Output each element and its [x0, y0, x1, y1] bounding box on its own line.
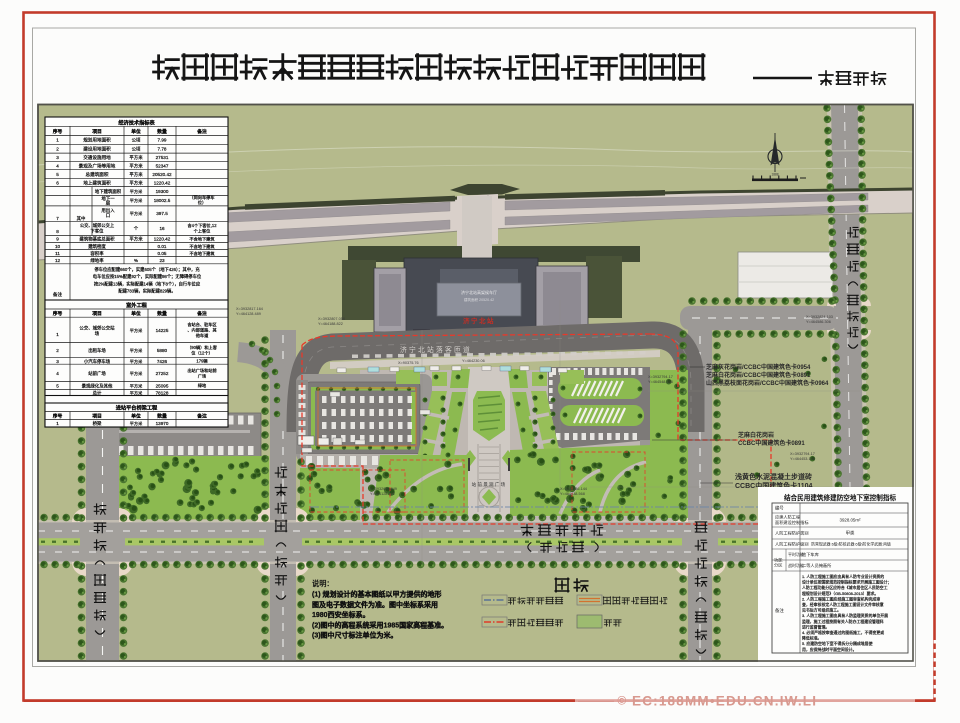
svg-text:X=3932630.849: X=3932630.849: [370, 487, 397, 491]
svg-text:口: 口: [106, 213, 110, 218]
svg-text:数量: 数量: [157, 412, 167, 419]
svg-text:X=3932817.164: X=3932817.164: [236, 307, 263, 311]
svg-text:站前景观广场: 站前景观广场: [472, 481, 507, 488]
svg-text:进站平台桥梁工程: 进站平台桥梁工程: [116, 404, 158, 412]
svg-text:4: 4: [56, 164, 59, 169]
svg-text:12: 12: [55, 258, 61, 263]
svg-text:电车位应按15%配建92个，实际配建98个；无障碍停车位: 电车位应按15%配建92个，实际配建98个；无障碍停车位: [93, 273, 202, 280]
svg-text:1: 1: [56, 421, 59, 426]
svg-text:1. 人防工程施工图应由具有人防专业设计资质的: 1. 人防工程施工图应由具有人防专业设计资质的: [802, 574, 884, 579]
svg-text:说明：: 说明：: [312, 579, 334, 588]
svg-text:小汽车停车场: 小汽车停车场: [84, 358, 111, 365]
svg-text:X=3932794.17: X=3932794.17: [790, 452, 815, 456]
svg-text:公顷: 公顷: [132, 146, 141, 153]
svg-text:广场: 广场: [198, 372, 206, 379]
svg-text:4: 4: [56, 371, 59, 376]
svg-text:数量: 数量: [157, 128, 167, 135]
svg-text:芝麻白花岗岩/CCBC中国建筑色卡0891: 芝麻白花岗岩/CCBC中国建筑色卡0891: [706, 371, 811, 379]
svg-text:分区: 分区: [774, 562, 782, 569]
svg-text:备注: 备注: [196, 310, 207, 317]
svg-text:用，应保持战时平面空间设计。: 用，应保持战时平面空间设计。: [802, 647, 856, 652]
svg-text:查，经审核核定人防工程施工图设计文件审核意: 查，经审核核定人防工程施工图设计文件审核意: [802, 602, 884, 607]
svg-text:5. 应建防空地下室不得拆分分隔成堆层使: 5. 应建防空地下室不得拆分分隔成堆层使: [802, 641, 873, 646]
svg-text:CCBC中国建筑色卡0891: CCBC中国建筑色卡0891: [738, 439, 805, 447]
svg-text:二等人员掩蔽所: 二等人员掩蔽所: [802, 562, 831, 569]
svg-text:平方米: 平方米: [129, 171, 143, 178]
svg-text:建筑密度: 建筑密度: [88, 243, 106, 250]
svg-text:(2)图中的高程系统采用1985国家高程基准。: (2)图中的高程系统采用1985国家高程基准。: [312, 620, 448, 629]
svg-text:项目: 项目: [92, 310, 102, 317]
svg-text:进行监督管理。: 进行监督管理。: [802, 624, 829, 629]
svg-text:单位: 单位: [131, 128, 141, 135]
svg-text:总建筑面积: 总建筑面积: [86, 171, 109, 178]
svg-text:Y=464128.721: Y=464128.721: [370, 492, 395, 496]
svg-text:地下建筑面积: 地下建筑面积: [95, 188, 122, 195]
svg-text:项目: 项目: [92, 128, 102, 135]
svg-text:浅黄色水泥混凝土步道砖: 浅黄色水泥混凝土步道砖: [735, 472, 812, 481]
svg-text:0.01: 0.01: [158, 244, 167, 249]
svg-text:平方米: 平方米: [130, 327, 143, 334]
svg-text:图及电子数据文件为准。图中坐标系采用: 图及电子数据文件为准。图中坐标系采用: [312, 600, 438, 609]
svg-text:规划用地面积: 规划用地面积: [83, 137, 111, 144]
svg-text:经济技术指标表: 经济技术指标表: [118, 119, 155, 127]
svg-text:Y=464548.366: Y=464548.366: [648, 380, 673, 384]
svg-text:编号: 编号: [775, 505, 784, 512]
svg-text:10: 10: [55, 244, 61, 249]
svg-text:地下车库: 地下车库: [802, 551, 819, 558]
svg-text:X=3932794.17: X=3932794.17: [648, 375, 673, 379]
svg-text:1888: 1888: [771, 173, 778, 177]
svg-text:平方米: 平方米: [130, 210, 143, 217]
svg-text:179辆: 179辆: [196, 358, 207, 365]
svg-text:不含地下建筑: 不含地下建筑: [189, 250, 215, 257]
svg-text:芝麻灰花岗岩/CCBC中国建筑色卡0954: 芝麻灰花岗岩/CCBC中国建筑色卡0954: [706, 363, 811, 371]
svg-text:(3)图中尺寸标注单位为米。: (3)图中尺寸标注单位为米。: [312, 631, 398, 640]
svg-text:场: 场: [95, 330, 100, 337]
svg-text:——— ©: ——— ©: [578, 694, 626, 708]
svg-text:人防工程防护级别: 人防工程防护级别: [775, 541, 809, 548]
svg-text:景观绿化及其他: 景观绿化及其他: [82, 382, 113, 389]
svg-text:位（12个）: 位（12个）: [191, 349, 212, 355]
svg-text:停车位应配建660个，实建605个（地下426）；其中，充: 停车位应配建660个，实建605个（地下426）；其中，充: [94, 266, 200, 273]
svg-text:平方米: 平方米: [130, 420, 143, 427]
svg-text:%: %: [134, 258, 138, 263]
svg-text:备注: 备注: [196, 412, 207, 419]
svg-text:平方米: 平方米: [129, 236, 143, 243]
svg-text:397.5: 397.5: [156, 211, 168, 216]
svg-text:见书后方可组织施工。: 见书后方可组织施工。: [802, 608, 841, 613]
svg-text:Y=464038.568: Y=464038.568: [560, 492, 585, 496]
svg-text:20520.42: 20520.42: [152, 172, 172, 177]
svg-text:平方米: 平方米: [129, 154, 143, 161]
svg-text:1: 1: [56, 332, 59, 337]
svg-text:Y=464188.822: Y=464188.822: [318, 322, 343, 326]
svg-text:个上客位: 个上客位: [194, 228, 211, 235]
svg-text:4. 必须严格按审查通过的图纸施工，不得变更或: 4. 必须严格按审查通过的图纸施工，不得变更或: [802, 630, 884, 635]
svg-text:山西黑荔枝面花岗岩/CCBC中国建筑色卡0964: 山西黑荔枝面花岗岩/CCBC中国建筑色卡0964: [706, 379, 829, 387]
svg-text:平方米: 平方米: [130, 188, 143, 195]
svg-text:绿地: 绿地: [198, 382, 207, 388]
svg-text:序号: 序号: [53, 128, 63, 135]
svg-text:总计: 总计: [93, 389, 102, 396]
svg-text:备注: 备注: [53, 291, 63, 298]
svg-text:下客位: 下客位: [91, 228, 105, 235]
svg-text:平方米: 平方米: [129, 179, 143, 186]
svg-text:25095: 25095: [156, 383, 169, 388]
svg-text:备注: 备注: [775, 607, 784, 614]
svg-text:不含地下建筑: 不含地下建筑: [189, 243, 215, 250]
svg-text:6: 6: [56, 180, 59, 185]
svg-text:平方米: 平方米: [130, 197, 143, 204]
svg-text:7.99: 7.99: [158, 138, 167, 143]
svg-text:序号: 序号: [53, 310, 63, 317]
svg-text:2: 2: [56, 147, 59, 152]
svg-text:备注: 备注: [196, 128, 207, 135]
svg-text:平方米: 平方米: [129, 163, 143, 170]
svg-text:X=3932807.058: X=3932807.058: [318, 317, 345, 321]
svg-text:平方米: 平方米: [130, 370, 143, 377]
svg-text:其中: 其中: [77, 215, 86, 222]
svg-text:降低标准。: 降低标准。: [802, 636, 821, 641]
svg-text:0.05: 0.05: [158, 251, 167, 256]
svg-text:1220.42: 1220.42: [154, 180, 171, 185]
svg-text:5: 5: [56, 383, 59, 388]
svg-text:交通设施用地: 交通设施用地: [83, 154, 111, 161]
svg-text:Y=464586.306: Y=464586.306: [806, 320, 831, 324]
svg-text:济宁北站高架候车厅: 济宁北站高架候车厅: [461, 289, 497, 295]
svg-text:位）: 位）: [198, 199, 206, 205]
svg-text:52347: 52347: [156, 164, 169, 169]
svg-text:1: 1: [56, 138, 59, 143]
svg-text:地上建筑面积: 地上建筑面积: [83, 179, 111, 186]
svg-text:甲类: 甲类: [846, 530, 855, 537]
svg-text:面积建设控制指标: 面积建设控制指标: [775, 519, 809, 526]
svg-text:桥梁: 桥梁: [93, 420, 102, 427]
svg-text:个: 个: [134, 226, 139, 231]
svg-text:3: 3: [56, 359, 59, 364]
svg-text:数量: 数量: [157, 310, 167, 317]
svg-text:27252: 27252: [156, 371, 169, 376]
svg-text:EC:188MM•EDU.CN.IW.LI: EC:188MM•EDU.CN.IW.LI: [632, 694, 817, 709]
svg-text:公顷: 公顷: [132, 137, 141, 144]
svg-text:建设用地面积: 建设用地面积: [83, 146, 111, 153]
svg-text:18002.5: 18002.5: [154, 198, 171, 203]
svg-text:Y=464128.489: Y=464128.489: [236, 312, 261, 316]
svg-text:7.78: 7.78: [158, 147, 167, 152]
svg-text:出租车场: 出租车场: [88, 347, 106, 354]
svg-text:容积率: 容积率: [90, 250, 104, 257]
svg-text:不含地下建筑: 不含地下建筑: [189, 236, 215, 243]
svg-text:3928.05m²: 3928.05m²: [840, 518, 862, 523]
svg-text:建筑物基底总面积: 建筑物基底总面积: [79, 236, 115, 243]
svg-text:防常规武器:6级\防核武器:6级\防化学武器:丙级: 防常规武器:6级\防核武器:6级\防化学武器:丙级: [811, 542, 891, 547]
svg-text:绿地率: 绿地率: [90, 257, 104, 264]
svg-text:结合民用建筑修建防空地下室控制指标: 结合民用建筑修建防空地下室控制指标: [784, 493, 896, 502]
svg-text:人防工程功能分区应符合《城市居住区人民防空工: 人防工程功能分区应符合《城市居住区人民防空工: [802, 585, 888, 590]
svg-text:Y=464230.06: Y=464230.06: [462, 359, 485, 363]
svg-text:11: 11: [55, 251, 60, 256]
svg-text:平方米: 平方米: [130, 358, 143, 365]
svg-text:他车道: 他车道: [196, 332, 209, 339]
svg-text:X=3932824.103: X=3932824.103: [806, 315, 833, 319]
svg-text:站前广场: 站前广场: [88, 370, 106, 377]
svg-text:78128: 78128: [156, 390, 169, 395]
svg-text:芝麻白花岗岩: 芝麻白花岗岩: [738, 431, 774, 439]
svg-text:人防工程防护类别: 人防工程防护类别: [775, 530, 809, 537]
svg-text:7426: 7426: [157, 359, 168, 364]
svg-text:程规划设计规范》（GB-50808-2013）要求。: 程规划设计规范》（GB-50808-2013）要求。: [802, 591, 878, 596]
svg-text:监理，施工过程按照有关人防办工程建设管理科: 监理，施工过程按照有关人防办工程建设管理科: [802, 619, 884, 624]
svg-text:单位: 单位: [131, 310, 141, 317]
svg-text:1220.42: 1220.42: [154, 237, 171, 242]
svg-text:1980西安坐标系。: 1980西安坐标系。: [312, 610, 370, 619]
svg-text:Y=464453.106: Y=464453.106: [790, 457, 815, 461]
svg-text:单位: 单位: [131, 412, 141, 419]
svg-text:7: 7: [56, 216, 59, 221]
svg-text:设计单位按国家规范控制指标要求开展施工图设计；: 设计单位按国家规范控制指标要求开展施工图设计；: [802, 580, 891, 585]
svg-text:8: 8: [56, 229, 59, 234]
svg-text:平方米: 平方米: [130, 389, 143, 396]
svg-text:X=3932586.144: X=3932586.144: [560, 487, 587, 491]
svg-text:(1) 规划设计的基本图纸以甲方提供的地形: (1) 规划设计的基本图纸以甲方提供的地形: [312, 590, 442, 599]
svg-text:27531: 27531: [156, 155, 169, 160]
svg-text:3: 3: [56, 155, 59, 160]
svg-text:平方米: 平方米: [130, 347, 143, 354]
svg-text:9: 9: [56, 237, 59, 242]
svg-text:14225: 14225: [156, 328, 169, 333]
svg-text:2: 2: [56, 348, 59, 353]
svg-text:建筑面积 20520.42: 建筑面积 20520.42: [464, 297, 494, 302]
svg-text:2. 人防工程施工图应经施工图审查机构完成审: 2. 人防工程施工图应经施工图审查机构完成审: [802, 596, 880, 601]
svg-text:室外工程: 室外工程: [126, 301, 148, 309]
svg-text:19300: 19300: [156, 189, 169, 194]
svg-text:济宁北站: 济宁北站: [463, 316, 495, 325]
svg-text:5880: 5880: [157, 348, 168, 353]
svg-text:平方米: 平方米: [130, 382, 143, 389]
svg-text:5: 5: [56, 172, 59, 177]
svg-text:按2%配建13辆，实际配建14辆（地下8个），自行车位应: 按2%配建13辆，实际配建14辆（地下8个），自行车位应: [94, 280, 201, 287]
svg-text:23: 23: [159, 258, 165, 263]
svg-text:济宁北站落客匝道: 济宁北站落客匝道: [400, 345, 472, 354]
svg-text:X=90375.76: X=90375.76: [398, 361, 419, 365]
svg-text:配建783辆，实际配建829辆。: 配建783辆，实际配建829辆。: [118, 288, 175, 295]
svg-text:3. 人防工程施工图由具有人防监理资质的单位开展: 3. 人防工程施工图由具有人防监理资质的单位开展: [802, 613, 888, 618]
svg-text:项目: 项目: [92, 412, 102, 419]
svg-text:序号: 序号: [53, 412, 63, 419]
svg-text:13970: 13970: [156, 421, 169, 426]
svg-text:景观及广场等用地: 景观及广场等用地: [79, 163, 116, 170]
svg-text:16: 16: [159, 226, 165, 231]
